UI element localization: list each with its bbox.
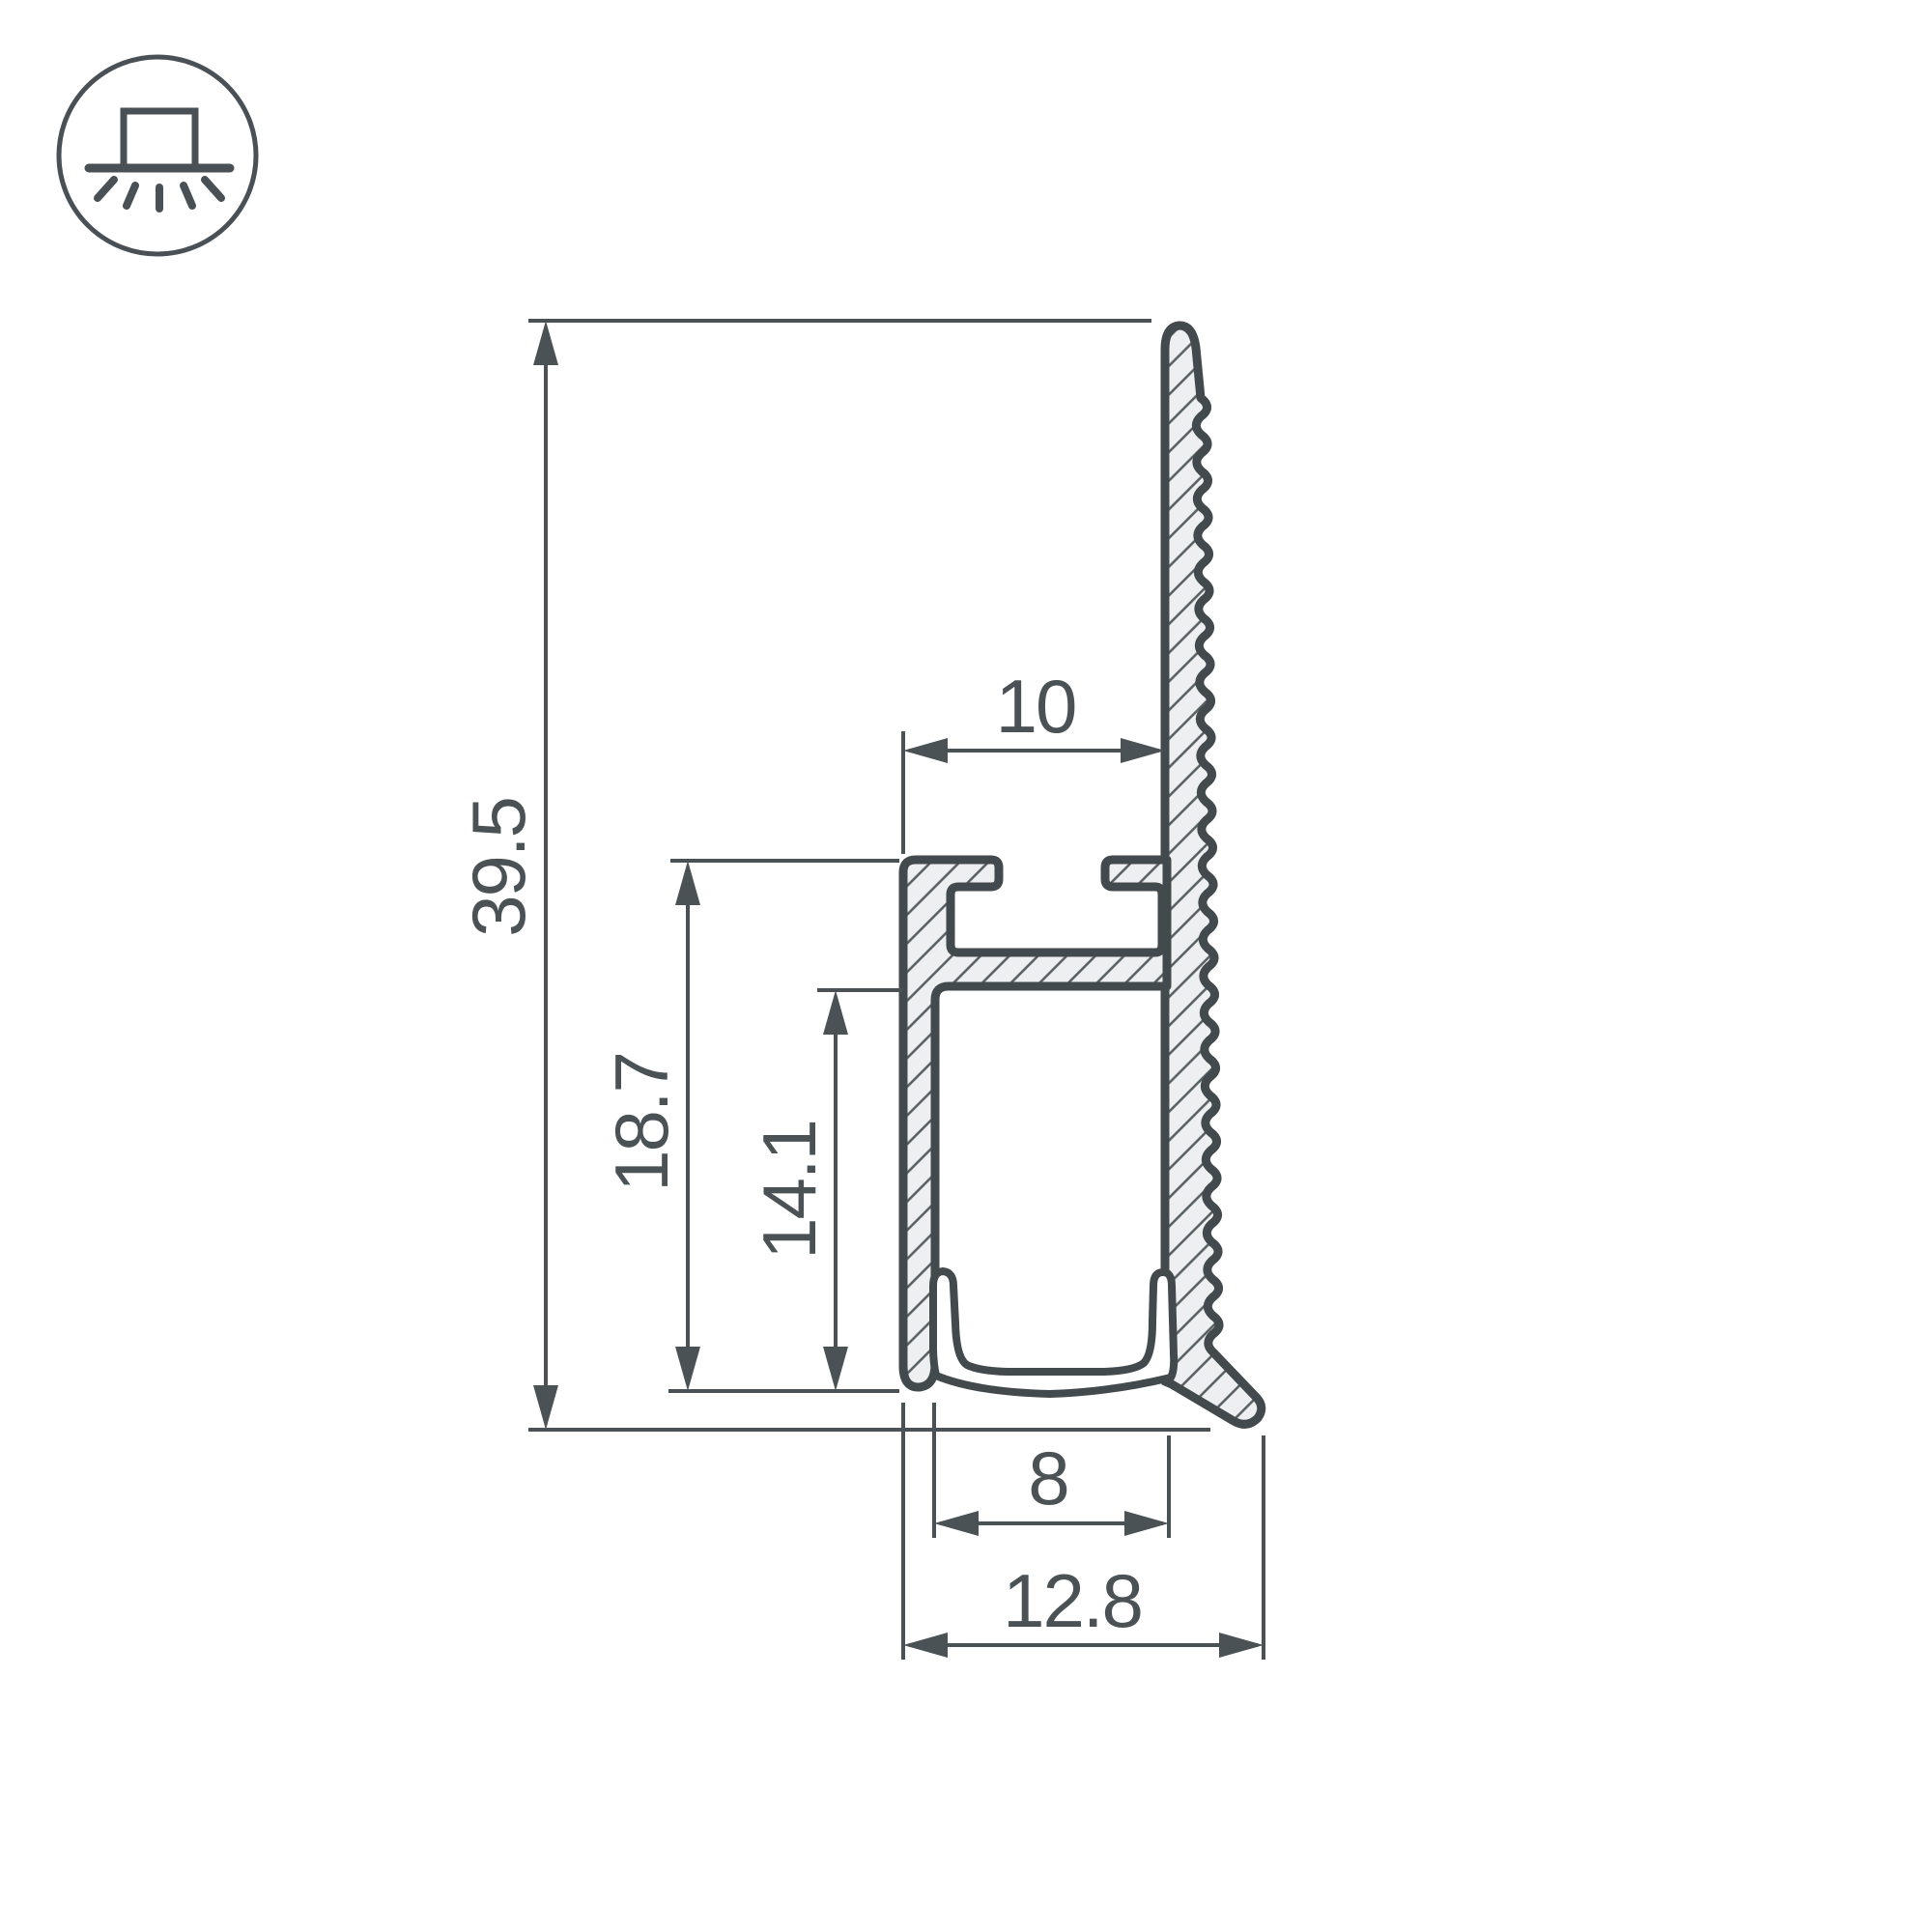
dimension-overall-width: 12.8: [903, 1403, 1264, 1660]
dimension-label-wall-height: 18.7: [599, 1053, 684, 1192]
arrowhead-icon: [823, 1347, 848, 1391]
dimension-label-overall-width: 12.8: [1003, 1558, 1142, 1643]
technical-drawing-canvas: 39.5 18.7 14.1 10: [0, 0, 1932, 1932]
light-ray-icon: [184, 185, 192, 206]
arrowhead-icon: [1124, 1511, 1169, 1536]
icon-circle: [59, 57, 256, 254]
dimension-label-inner-width: 8: [1028, 1435, 1067, 1520]
arrowhead-icon: [934, 1511, 979, 1536]
dimension-label-overall-height: 39.5: [456, 798, 541, 937]
profile-section: [903, 326, 1262, 1424]
drawing-page: 39.5 18.7 14.1 10: [0, 0, 1932, 1932]
arrowhead-icon: [903, 738, 948, 763]
arrowhead-icon: [823, 990, 848, 1035]
arrowhead-icon: [675, 1347, 700, 1391]
light-ray-icon: [98, 180, 114, 198]
icon-fixture-square: [124, 111, 195, 167]
dimension-label-inner-height: 14.1: [747, 1121, 832, 1260]
mount-icon: [59, 57, 256, 254]
dimension-overall-height: 39.5: [456, 321, 1210, 1430]
dimension-inner-width: 8: [934, 1403, 1169, 1538]
arrowhead-icon: [903, 1633, 948, 1658]
dimension-label-top-width: 10: [996, 664, 1076, 749]
diffuser-cover-section: [933, 1271, 1174, 1394]
arrowhead-icon: [533, 321, 558, 365]
arrowhead-icon: [1219, 1633, 1264, 1658]
icon-light-rays: [98, 180, 221, 209]
dimension-inner-height: 14.1: [747, 990, 902, 1391]
dimension-top-width: 10: [903, 664, 1165, 854]
arrowhead-icon: [675, 861, 700, 905]
mounting-flange-section: [1165, 326, 1262, 1424]
light-ray-icon: [127, 185, 135, 206]
arrowhead-icon: [1121, 738, 1165, 763]
light-ray-icon: [205, 180, 221, 198]
arrowhead-icon: [533, 1385, 558, 1430]
